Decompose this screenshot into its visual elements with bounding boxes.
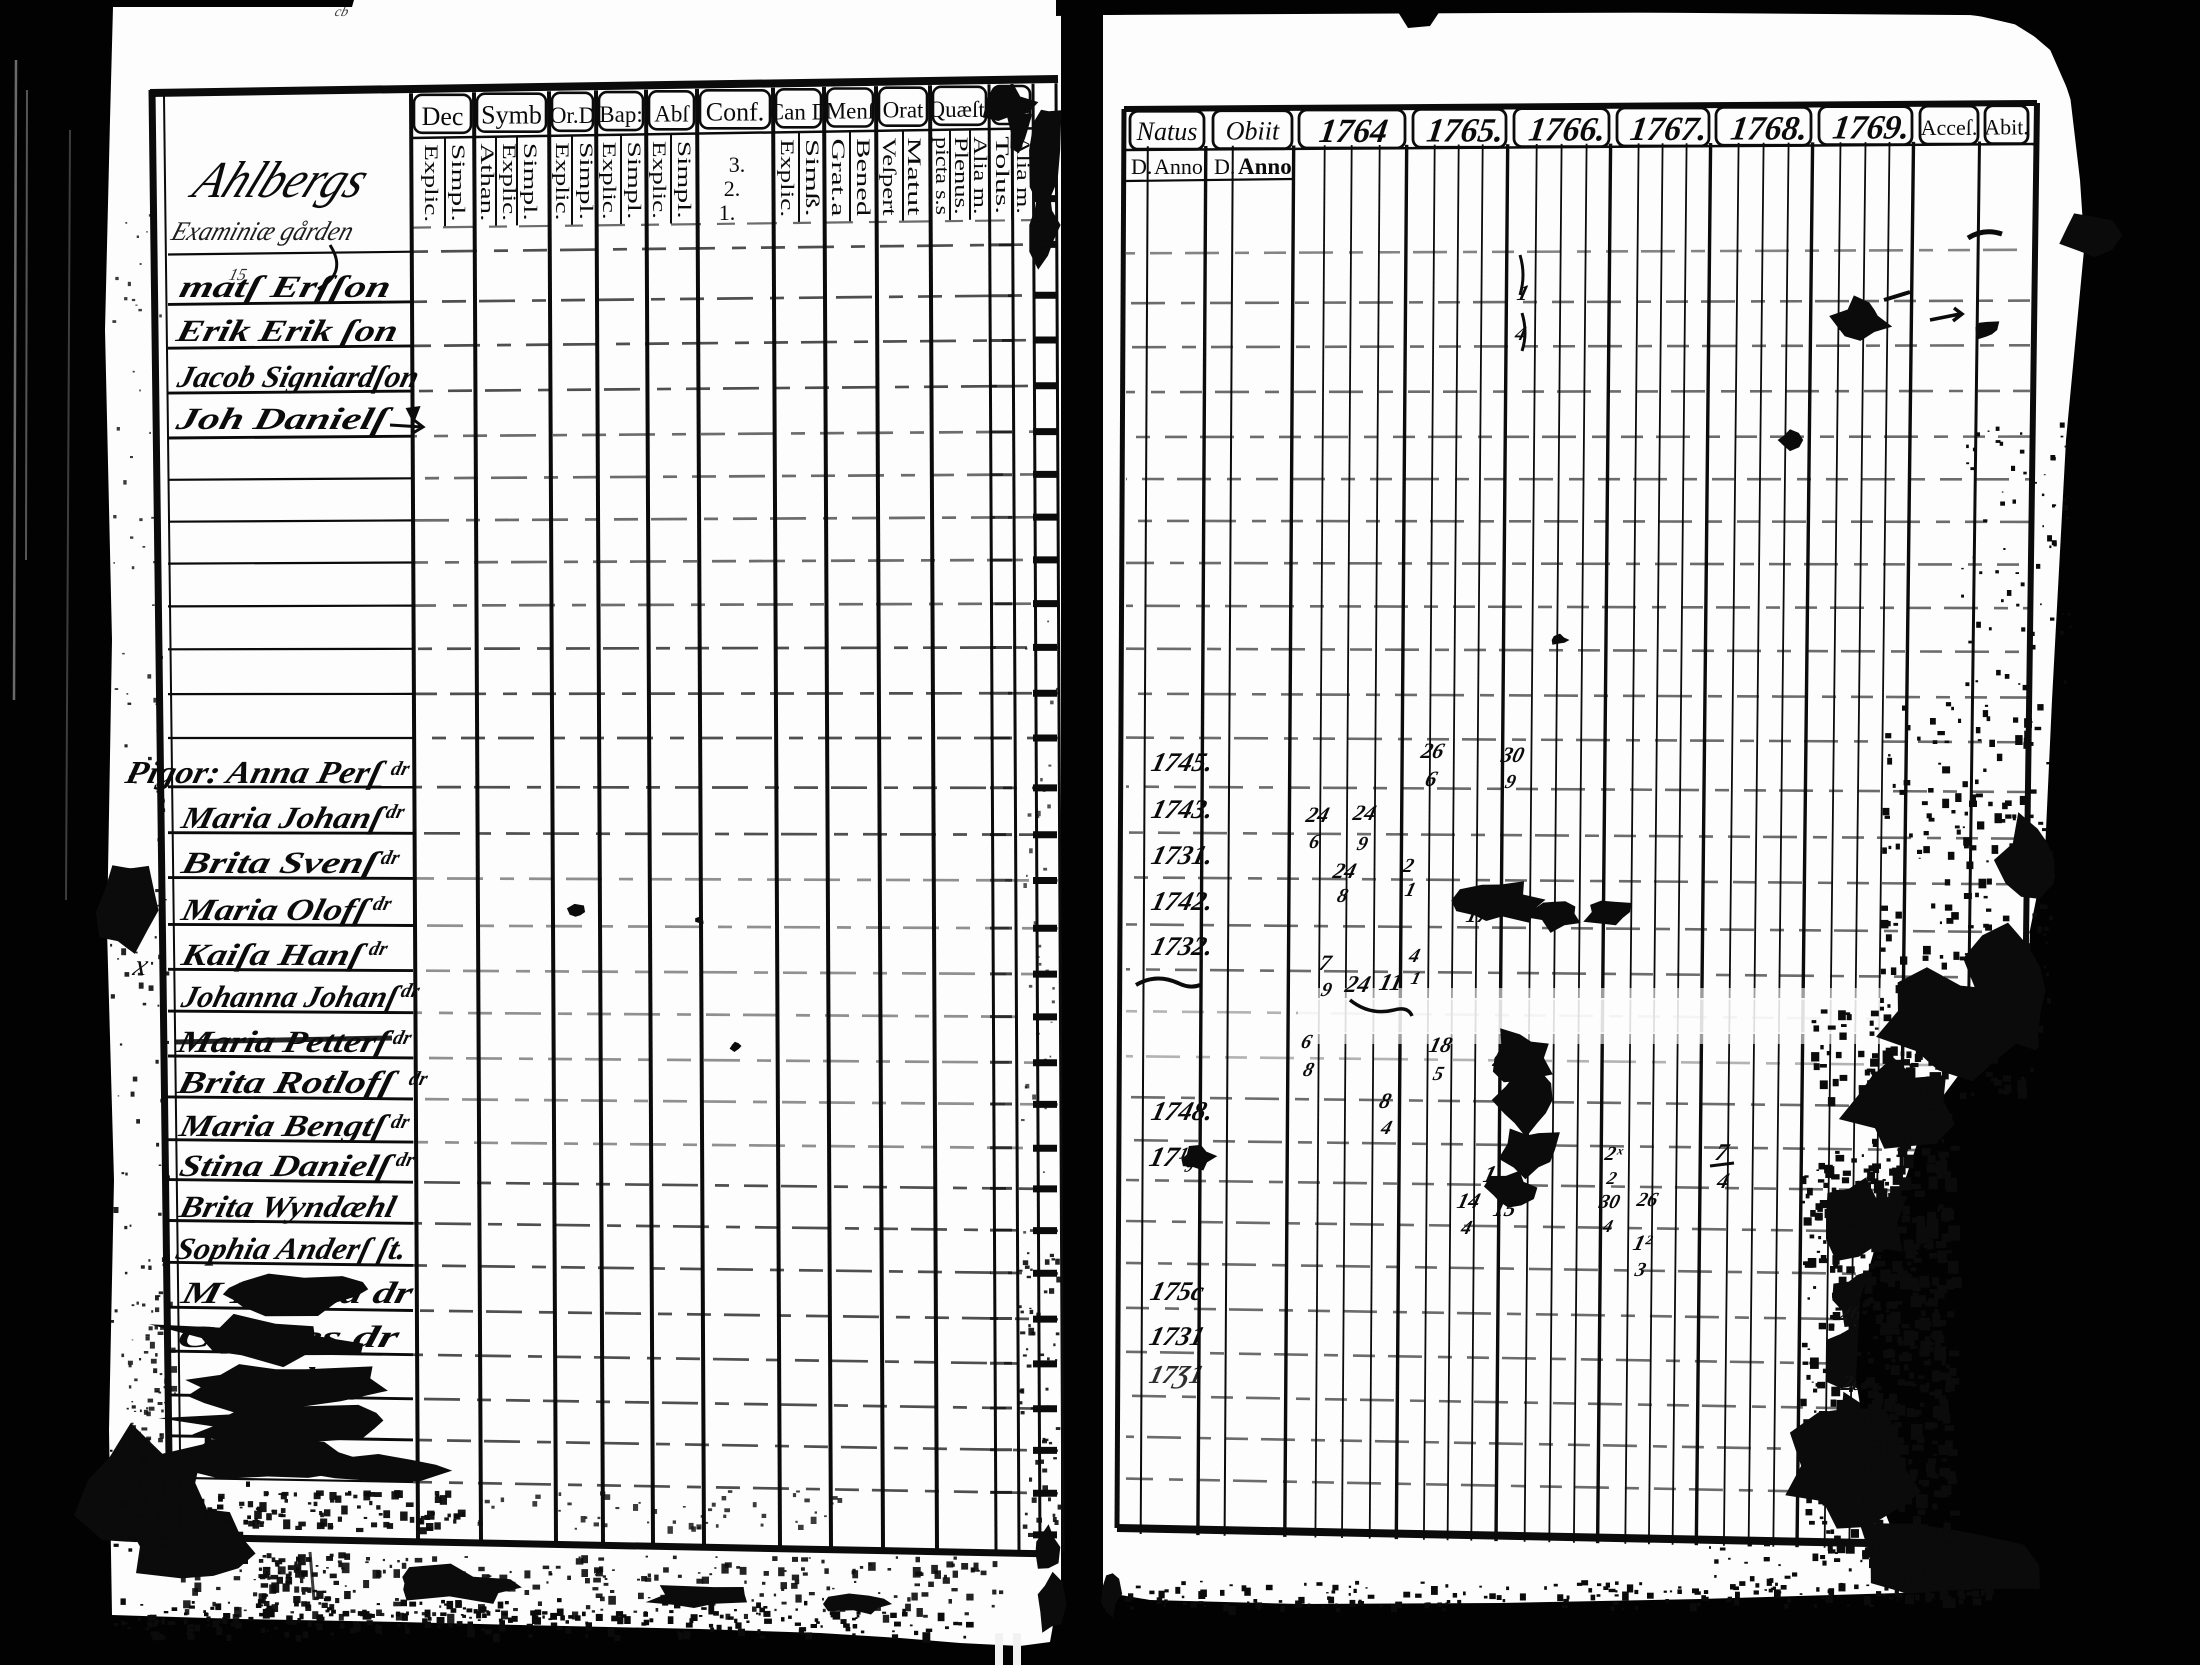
svg-text:Explic.: Explic. xyxy=(551,142,572,220)
svg-text:Can D: Can D xyxy=(769,99,828,124)
svg-text:Athan.: Athan. xyxy=(476,143,497,221)
svg-text:1745.: 1745. xyxy=(1149,747,1217,777)
svg-text:Abit.: Abit. xyxy=(1984,115,2029,140)
svg-text:1731: 1731 xyxy=(1147,1321,1208,1351)
svg-text:Acceſ.: Acceſ. xyxy=(1921,115,1978,140)
svg-text:Bened: Bened xyxy=(852,138,873,217)
svg-text:1743.: 1743. xyxy=(1149,794,1217,824)
svg-text:Orat: Orat xyxy=(883,98,924,123)
svg-text:Explic.: Explic. xyxy=(420,144,441,222)
svg-text:Maria Olofſ: Maria Olofſ xyxy=(177,892,376,926)
svg-text:17Ʒ1: 17Ʒ1 xyxy=(1147,1359,1207,1389)
svg-text:Explic.: Explic. xyxy=(598,142,619,220)
svg-text:1764: 1764 xyxy=(1317,113,1390,150)
svg-text:Simß.: Simß. xyxy=(801,139,822,217)
svg-text:1731.: 1731. xyxy=(1149,840,1217,870)
svg-text:Menſ: Menſ xyxy=(826,99,876,124)
svg-text:1765.: 1765. xyxy=(1424,112,1506,149)
svg-text:Anno: Anno xyxy=(1238,154,1292,179)
svg-text:Simpl.: Simpl. xyxy=(673,141,694,219)
svg-text:Alia m.: Alia m. xyxy=(969,137,990,215)
svg-text:Grat.a: Grat.a xyxy=(827,139,848,218)
svg-text:Johanna Johanſ: Johanna Johanſ xyxy=(177,979,405,1013)
svg-text:Joh Danielſ: Joh Danielſ xyxy=(172,401,397,435)
svg-text:1766.: 1766. xyxy=(1526,112,1608,149)
svg-text:Symb: Symb xyxy=(481,101,542,130)
svg-text:Conf.: Conf. xyxy=(706,97,765,126)
svg-text:Stina Danielſ: Stina Danielſ xyxy=(176,1148,399,1182)
svg-text:Quæſt.: Quæſt. xyxy=(929,97,991,122)
svg-text:1742.: 1742. xyxy=(1149,886,1217,916)
svg-text:2.: 2. xyxy=(724,176,741,201)
svg-text:Simpl.: Simpl. xyxy=(447,144,468,222)
svg-text:picta s.s: picta s.s xyxy=(931,137,952,215)
svg-text:1732.: 1732. xyxy=(1149,931,1217,961)
svg-text:Ahlbergs: Ahlbergs xyxy=(182,150,378,208)
svg-text:Brita Wyndæhl: Brita Wyndæhl xyxy=(175,1189,400,1223)
svg-text:Plenus.: Plenus. xyxy=(950,137,971,215)
svg-text:matſ Erſſon: matſ Erſſon xyxy=(176,269,395,303)
svg-text:Simpl.: Simpl. xyxy=(575,142,596,220)
svg-text:175с: 175с xyxy=(1148,1276,1208,1306)
svg-text:1748.: 1748. xyxy=(1149,1096,1217,1126)
svg-text:Brita Rotlofſ: Brita Rotlofſ xyxy=(173,1065,402,1100)
svg-text:1.: 1. xyxy=(719,200,736,225)
svg-text:Obiit: Obiit xyxy=(1226,117,1280,146)
svg-text:Maria Bengtſ: Maria Bengtſ xyxy=(175,1108,394,1142)
svg-text:Brita Svenſ: Brita Svenſ xyxy=(177,845,387,879)
svg-text:Natus: Natus xyxy=(1136,117,1198,146)
svg-text:Simpl.: Simpl. xyxy=(623,141,644,219)
svg-text:Explic.: Explic. xyxy=(648,141,669,219)
svg-text:D.: D. xyxy=(1131,154,1152,179)
svg-text:1769.: 1769. xyxy=(1830,110,1912,147)
svg-text:1767.: 1767. xyxy=(1628,111,1710,148)
svg-text:Erik Erik ſon: Erik Erik ſon xyxy=(172,313,402,347)
svg-text:Abſ: Abſ xyxy=(654,101,690,126)
svg-text:Maria Johanſ: Maria Johanſ xyxy=(177,800,391,834)
svg-text:Examiniæ gården: Examiniæ gården xyxy=(167,216,358,246)
svg-text:Matut: Matut xyxy=(903,137,924,216)
svg-text:Sophia Anderſ ſt.: Sophia Anderſ ſt. xyxy=(172,1231,411,1265)
svg-text:Tolus.: Tolus. xyxy=(991,136,1012,214)
svg-text:Explic.: Explic. xyxy=(498,143,519,221)
svg-text:Kaiſa Hanſ: Kaiſa Hanſ xyxy=(177,937,371,971)
svg-text:Or.D: Or.D xyxy=(550,103,595,128)
svg-text:Veſpert: Veſpert xyxy=(878,138,899,217)
svg-text:Dec: Dec xyxy=(422,102,464,131)
svg-text:Bap:: Bap: xyxy=(599,102,642,127)
svg-text:1768.: 1768. xyxy=(1728,110,1810,147)
svg-text:Anno: Anno xyxy=(1154,154,1203,179)
svg-text:Simpl.: Simpl. xyxy=(519,143,540,221)
svg-text:Jacob Signiardſon: Jacob Signiardſon xyxy=(173,359,423,393)
svg-text:3.: 3. xyxy=(729,152,746,177)
svg-text:Explic.: Explic. xyxy=(776,139,797,217)
svg-text:Pigor: Anna Perſ: Pigor: Anna Perſ xyxy=(121,755,389,790)
